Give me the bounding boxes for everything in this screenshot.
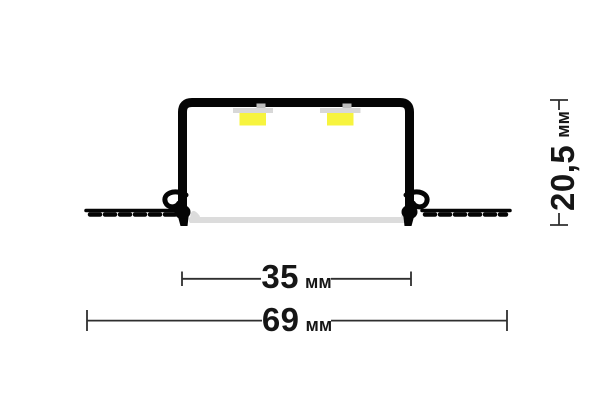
- drawing-canvas: 35 мм 69 мм 20,5 мм: [0, 0, 601, 408]
- profile-cross-section-drawing: [0, 0, 601, 408]
- dimension-label-overall-width: 69 мм: [87, 303, 507, 336]
- diffuser-plate: [189, 217, 412, 223]
- led-chip-right: [327, 113, 354, 126]
- height-value: 20,5: [546, 145, 579, 211]
- height-unit: мм: [554, 111, 572, 138]
- clip-bulb-left: [175, 205, 191, 219]
- profile-body: [183, 103, 410, 213]
- led-pcb-right: [320, 108, 361, 113]
- inner-width-unit: мм: [305, 273, 332, 291]
- inner-width-value: 35: [261, 260, 299, 293]
- dimension-label-inner-width: 35 мм: [182, 260, 411, 293]
- clip-bulb-right: [402, 205, 418, 219]
- led-solder-tab-left: [257, 104, 266, 109]
- dimension-label-height: 20,5 мм: [546, 91, 582, 231]
- overall-width-unit: мм: [306, 316, 333, 334]
- led-solder-tab-right: [343, 104, 352, 109]
- led-pcb-left: [233, 108, 273, 113]
- overall-width-value: 69: [262, 303, 300, 336]
- diffuser-left-ramp: [190, 211, 202, 223]
- led-chip-left: [240, 113, 267, 126]
